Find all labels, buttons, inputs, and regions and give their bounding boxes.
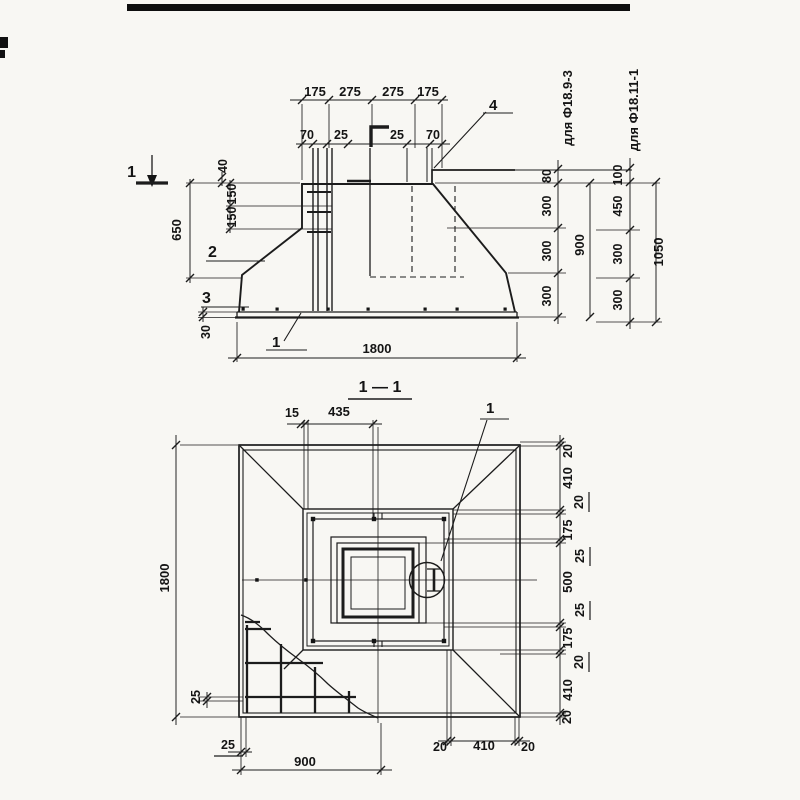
rchain-25b: 25: [573, 603, 587, 617]
elevation-view: 1 175 275 275 175 70 25 25 70 650 40 150…: [127, 69, 666, 362]
rchain-175a: 175: [561, 520, 575, 541]
callout-leaders: [201, 112, 513, 350]
foundation-outline: [239, 184, 515, 312]
break-line: [241, 615, 378, 718]
callout-4: 4: [489, 97, 498, 114]
plan-bchain-410: 410: [473, 738, 495, 753]
drawing-sheet: 1 175 275 275 175 70 25 25 70 650 40 150…: [0, 0, 800, 800]
plan-dim-900: 900: [294, 754, 316, 769]
plan-callout-leader: [441, 419, 509, 561]
dim-275-left: 275: [339, 84, 361, 99]
callout-2: 2: [208, 244, 217, 261]
hidden-variant-outline: [370, 186, 464, 277]
rebar-mesh: [241, 615, 378, 718]
dim-275-right: 275: [382, 84, 404, 99]
rchain-410a: 410: [560, 467, 575, 489]
dim-175-left: 175: [304, 84, 326, 99]
plan-bchain-20a: 20: [433, 740, 447, 754]
chain1-300c: 300: [540, 286, 554, 307]
section-cut-mark: 1: [127, 155, 168, 187]
scan-artifacts: [0, 4, 630, 58]
dim-25-right: 25: [390, 128, 404, 142]
rchain-20c: 20: [572, 655, 586, 669]
section-title: 1 — 1: [348, 379, 412, 399]
plan-dim-435: 435: [328, 404, 350, 419]
plan-dimension-ticks: [172, 420, 564, 774]
chain1-300b: 300: [540, 241, 554, 262]
plan-bchain-20b: 20: [521, 740, 535, 754]
slab-rebar-dots: [242, 308, 507, 311]
dim-650: 650: [169, 219, 184, 241]
upper-step-outline: [432, 170, 515, 184]
rchain-25a: 25: [573, 549, 587, 563]
dim-70-left: 70: [300, 128, 314, 142]
plan-dim-15: 15: [285, 406, 299, 420]
plan-dimension-lines: [176, 424, 560, 770]
right-bolt-lines: [407, 148, 432, 182]
elevation-extension-lines: [186, 104, 662, 362]
plan-dim-25-bottom: 25: [221, 738, 235, 752]
dim-1800-width: 1800: [363, 341, 392, 356]
chain2-100: 100: [611, 165, 625, 186]
section-mark-label: 1: [127, 164, 136, 181]
rchain-20a: 20: [561, 444, 575, 458]
chain1-total-900: 900: [572, 234, 587, 256]
plan-extension-lines: [180, 420, 566, 775]
dim-150-lower: 150: [225, 207, 239, 228]
chain1-300a: 300: [540, 196, 554, 217]
plan-dim-25-left: 25: [189, 690, 203, 704]
plan-view: 15 435 1 1800 25 25 900 20 410 20 20 410…: [157, 400, 590, 775]
rchain-20d: 20: [560, 710, 574, 724]
rchain-410b: 410: [560, 679, 575, 701]
rchain-500: 500: [560, 571, 575, 593]
dim-25-left: 25: [334, 128, 348, 142]
foundation-drawing: 1 175 275 275 175 70 25 25 70 650 40 150…: [0, 0, 800, 800]
rchain-175b: 175: [561, 628, 575, 649]
dim-30: 30: [199, 325, 213, 339]
anchor-bolts: [313, 148, 332, 311]
dim-40: 40: [216, 159, 230, 173]
chain2-variant-label: для Ф18.11-1: [626, 69, 641, 151]
dim-150-upper: 150: [225, 184, 239, 205]
chain2-300b: 300: [611, 290, 625, 311]
chain1-variant-label: для Ф18.9-3: [560, 70, 575, 146]
plan-dim-1800: 1800: [157, 564, 172, 593]
chain2-450: 450: [611, 196, 625, 217]
plan-callout-1: 1: [486, 400, 494, 417]
dim-70-right: 70: [426, 128, 440, 142]
dim-175-right: 175: [417, 84, 439, 99]
callout-3: 3: [202, 290, 211, 307]
chain2-total-1050: 1050: [651, 238, 666, 267]
chain1-80: 80: [540, 169, 554, 183]
chain2-300a: 300: [611, 244, 625, 265]
rchain-20b: 20: [572, 495, 586, 509]
section-title-text: 1 — 1: [359, 379, 402, 396]
callout-1: 1: [272, 334, 280, 351]
